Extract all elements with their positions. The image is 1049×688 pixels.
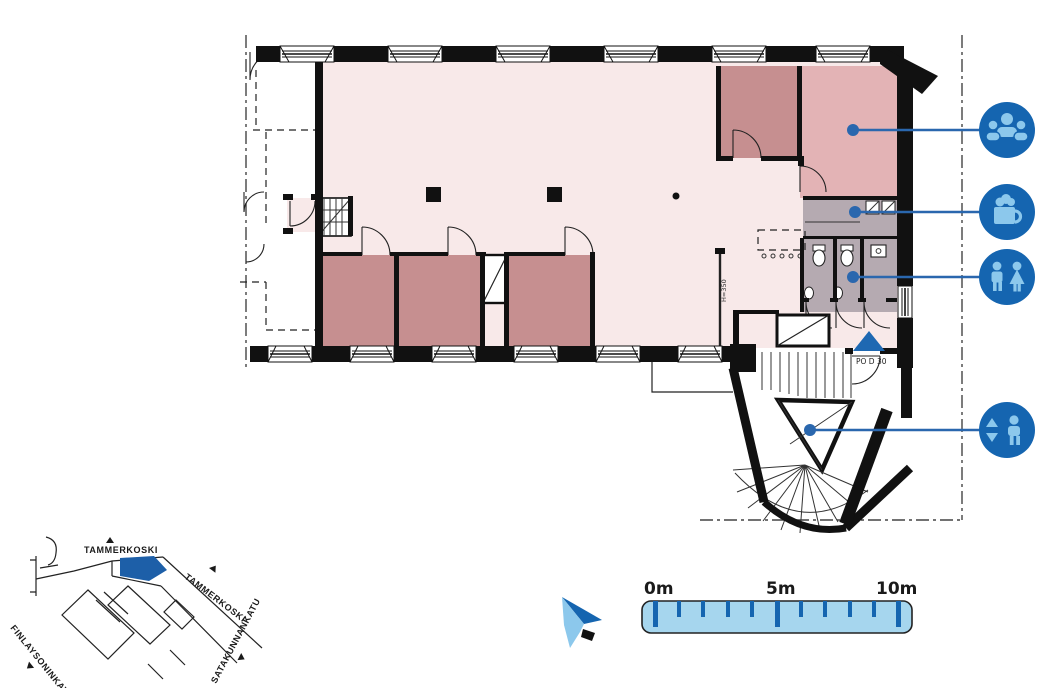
shaft-box (777, 315, 829, 346)
meeting-room-small (718, 66, 800, 158)
arrow-diamond (581, 629, 595, 641)
street-label-finlaysoninkatu: FINLAYSONINKATU (8, 623, 75, 688)
side-window (898, 286, 912, 318)
entrance-door-label: PO D 30 (856, 357, 887, 366)
neighbor-rooms (240, 52, 318, 330)
partition-height-label: H=350 (720, 279, 728, 302)
pillar-small (673, 193, 680, 200)
orientation-arrow (562, 597, 602, 648)
floorplan-canvas: H=350 (0, 0, 1049, 688)
vestibule (287, 198, 318, 232)
stairwell (730, 344, 912, 533)
room-1 (320, 255, 397, 346)
room-3 (507, 255, 593, 346)
locator-minimap: TAMMERKOSKI TAMMERKOSKI FINLAYSONINKATU … (8, 537, 262, 688)
wc-figures-icon[interactable] (979, 249, 1035, 305)
coffee-cup-icon[interactable] (979, 184, 1035, 240)
scale-label-5m: 5m (766, 579, 796, 599)
duct-shaft (483, 255, 507, 303)
room-2 (397, 255, 483, 346)
scale-bar: 0m 5m 10m (642, 579, 917, 633)
elevator-icon[interactable] (979, 402, 1035, 458)
scale-label-10m: 10m (876, 579, 917, 599)
building-highlight (120, 556, 167, 581)
pillar (426, 187, 441, 202)
scale-label-0m: 0m (644, 579, 674, 599)
street-label-tammerkoski-top: TAMMERKOSKI (84, 545, 158, 555)
people-group-icon[interactable] (979, 102, 1035, 158)
pillar (547, 187, 562, 202)
